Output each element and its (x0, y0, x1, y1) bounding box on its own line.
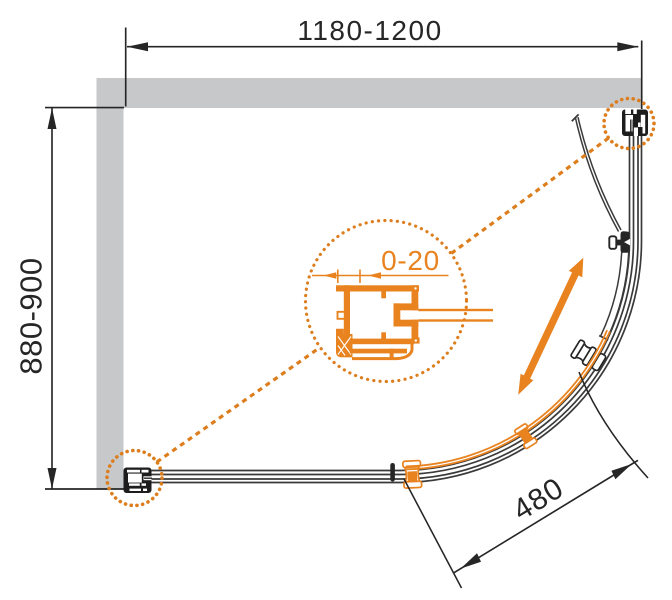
svg-text:480: 480 (507, 471, 569, 527)
svg-text:880-900: 880-900 (14, 257, 49, 374)
svg-text:0-20: 0-20 (381, 245, 440, 276)
svg-text:1180-1200: 1180-1200 (297, 15, 442, 46)
